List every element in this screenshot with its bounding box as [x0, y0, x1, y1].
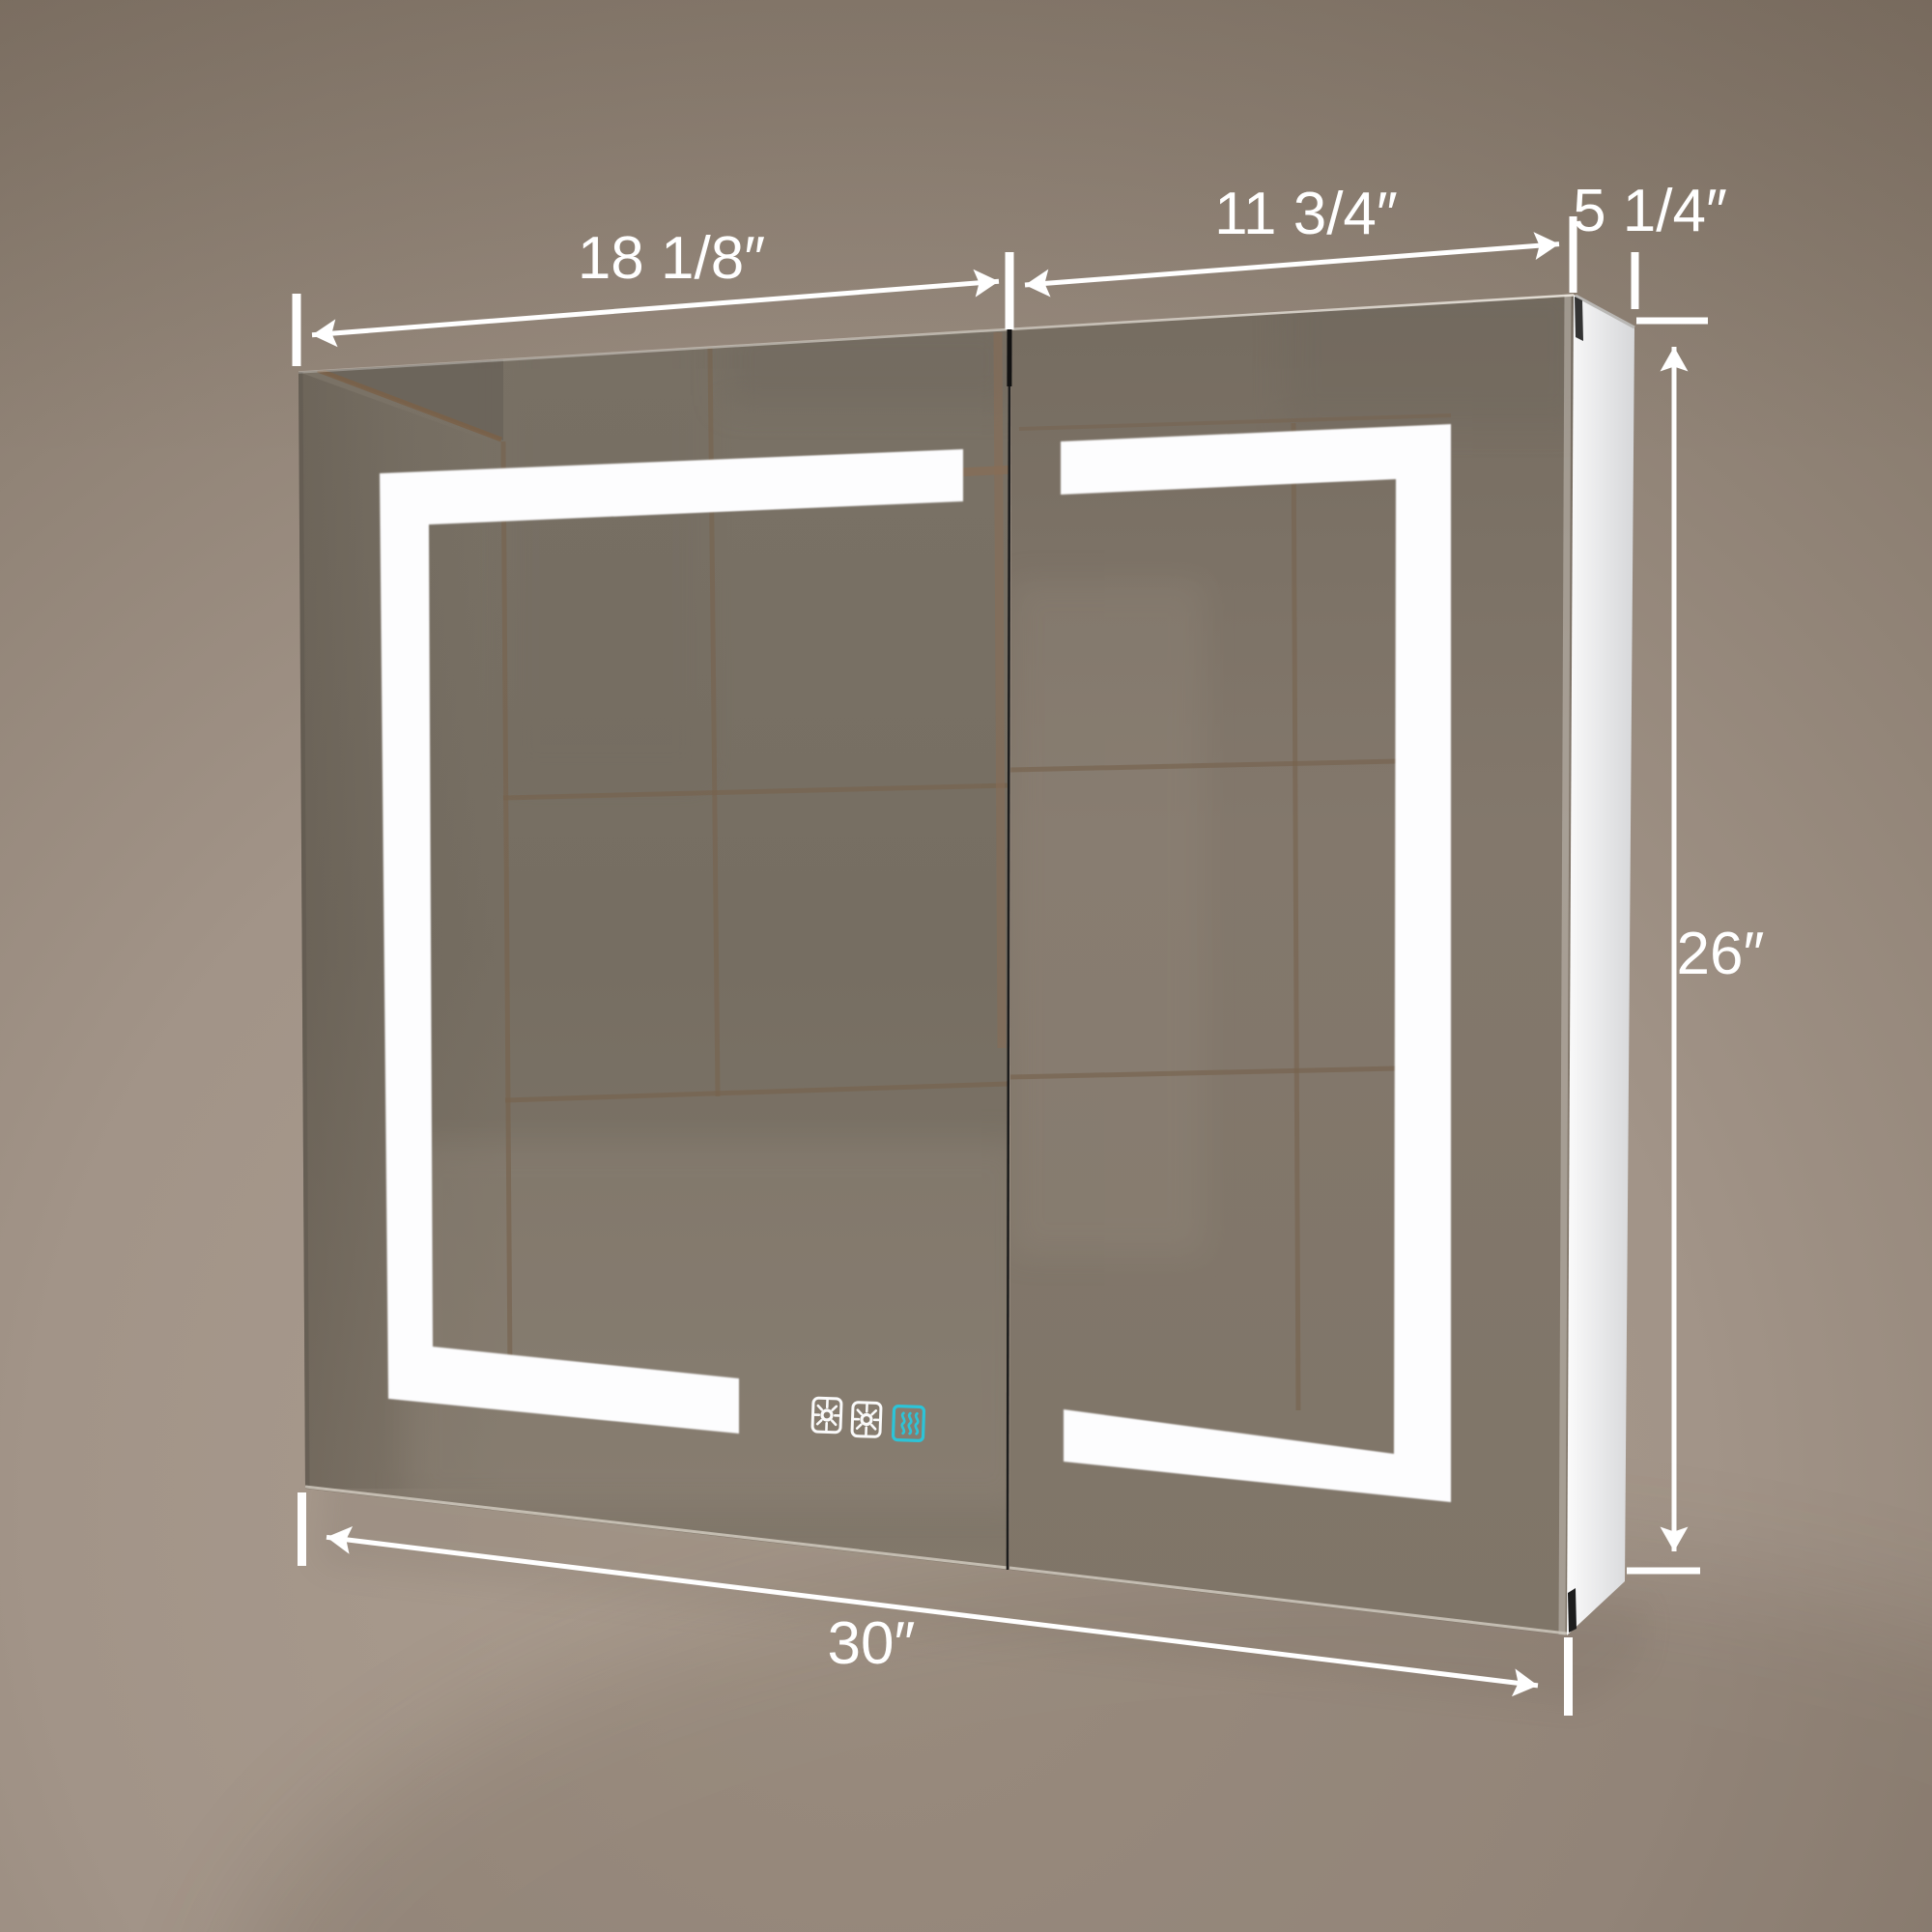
svg-text:18 1/8″: 18 1/8″	[578, 225, 765, 292]
svg-text:5 1/4″: 5 1/4″	[1573, 178, 1727, 244]
svg-text:26″: 26″	[1677, 921, 1765, 987]
svg-text:30″: 30″	[828, 1610, 916, 1677]
svg-text:11 3/4″: 11 3/4″	[1214, 181, 1398, 247]
